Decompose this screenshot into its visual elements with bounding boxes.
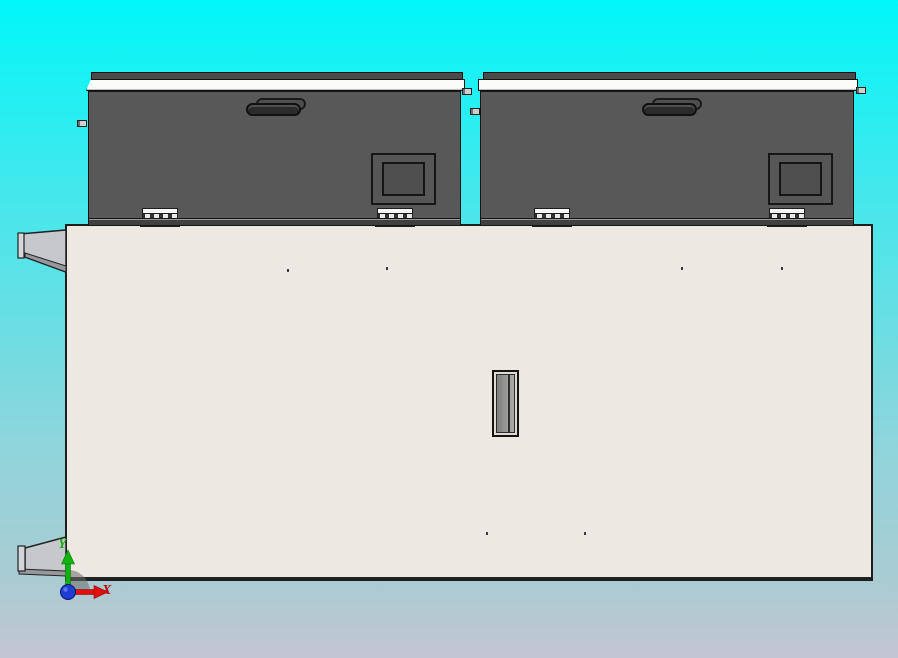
origin-sphere <box>61 585 76 600</box>
fastener-dot <box>386 267 388 270</box>
handle-grip <box>642 103 697 116</box>
left-lid-window[interactable] <box>371 153 436 205</box>
fastener-dot <box>781 267 783 270</box>
left-lid-side-pin-right <box>462 88 472 95</box>
cad-viewport: Y X <box>0 0 898 658</box>
right-lid-top-rail <box>478 79 858 91</box>
cabinet-body-base-edge <box>67 577 871 582</box>
left-upper-bracket[interactable] <box>17 228 69 276</box>
x-axis-label: X <box>101 583 112 598</box>
handle-grip <box>246 103 301 116</box>
left-lid-handle[interactable] <box>246 98 310 116</box>
fastener-dot <box>584 532 586 535</box>
right-lid[interactable] <box>478 72 858 226</box>
left-lid-bottom-rail <box>88 218 461 226</box>
right-lid-side-pin-left <box>470 108 480 115</box>
left-lid-side-pin-left <box>77 120 87 127</box>
window-pane <box>779 162 822 196</box>
window-pane <box>382 162 425 196</box>
center-slot-recess <box>496 374 515 433</box>
left-lid-top-rail-cap <box>91 72 463 80</box>
center-slot-divider <box>508 375 510 432</box>
origin-sphere-highlight <box>63 587 67 591</box>
fastener-dot <box>681 267 683 270</box>
center-slot[interactable] <box>492 370 519 437</box>
right-lid-handle[interactable] <box>642 98 706 116</box>
right-lid-bottom-rail <box>480 218 854 226</box>
cabinet-body[interactable] <box>65 224 873 581</box>
fastener-dot <box>287 269 289 272</box>
fastener-dot <box>486 532 488 535</box>
left-lid[interactable] <box>86 72 465 226</box>
y-axis-label: Y <box>58 537 68 552</box>
right-lid-side-pin-right <box>856 87 866 94</box>
bracket-end-plate <box>18 233 24 258</box>
right-lid-window[interactable] <box>768 153 833 205</box>
left-lid-top-rail <box>86 79 465 91</box>
bracket-end-plate <box>18 546 25 571</box>
coordinate-triad: Y X <box>36 524 132 616</box>
